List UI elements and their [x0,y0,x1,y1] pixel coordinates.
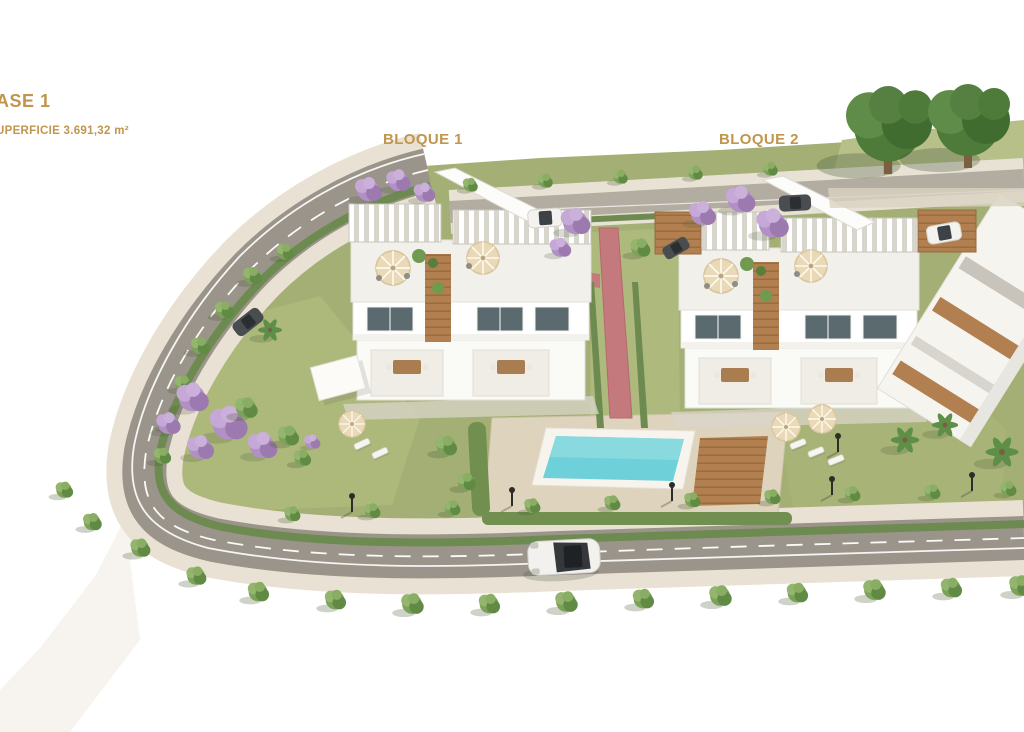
parked-white-car [527,208,562,228]
white-car [521,538,601,583]
block2-label: BLOQUE 2 [719,131,799,148]
umbrella [339,411,365,437]
phase-label: ASE 1 [0,91,51,112]
block1-label: BLOQUE 1 [383,131,463,148]
site-plan-scene [0,0,1024,732]
parked-gray-car [779,194,812,212]
umbrella [808,405,836,433]
architectural-render: ASE 1 UPERFICIE 3.691,32 m² BLOQUE 1 BLO… [0,0,1024,732]
surface-area-label: UPERFICIE 3.691,32 m² [0,125,129,137]
gravel-path [828,188,1024,208]
umbrella [772,413,800,441]
wood-deck [692,436,768,506]
pool-area [468,412,792,525]
pool-water-highlight [550,436,684,460]
